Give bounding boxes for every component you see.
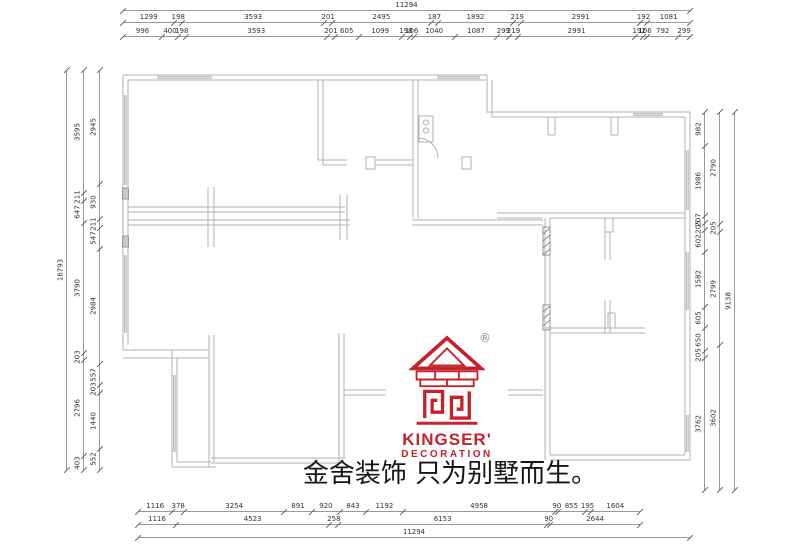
dim-chain-top-row2: 9964001983593201605109919810610401087299… [123, 36, 690, 37]
dim-chain-top-overall: 11294 [123, 10, 690, 11]
registered-trademark-icon: ® [479, 331, 491, 345]
dim-chain-bottom-overall: 11294 [138, 537, 690, 538]
dim-chain-right-inner: 982198620720560215826056502053762 [704, 112, 705, 490]
logo-name: KINGSER' [386, 430, 508, 449]
brand-slogan: 金舍装饰 只为别墅而生。 [300, 453, 600, 490]
kingser-logo: KINGSER' DECORATION [386, 335, 508, 461]
dim-chain-bottom-row2: 111645232586153902644 [138, 524, 640, 525]
dim-chain-left-inner: 294593021154729845572031440552 [99, 70, 100, 470]
house-emblem-icon [409, 335, 485, 427]
dim-chain-right-outer: 279020527993602 [719, 112, 720, 490]
dim-chain-bottom-row1: 1116378325489192084311924958908551951604 [138, 511, 640, 512]
floor-plan-page: 11294 1299198359320124951871892219299119… [0, 0, 800, 553]
dim-chain-left-outer: 359521164737902032796403 [83, 70, 84, 470]
dim-chain-top-row1: 129919835932012495187189221929911921081 [123, 22, 690, 23]
dim-chain-left-overall: 16793 [66, 70, 67, 470]
dim-chain-right-overall: 9138 [734, 112, 735, 490]
